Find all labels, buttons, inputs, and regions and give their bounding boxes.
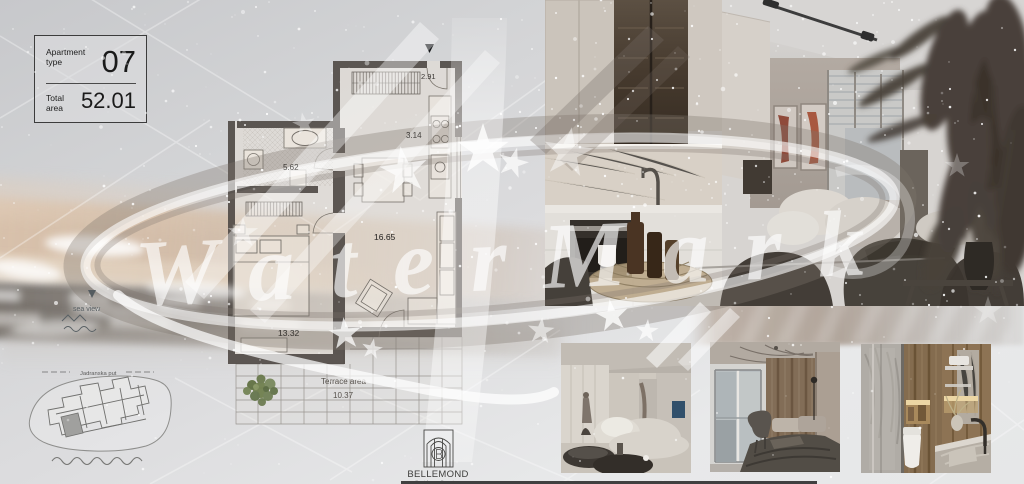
svg-text:Jadranska put: Jadranska put xyxy=(80,371,117,377)
svg-text:sea view: sea view xyxy=(73,306,101,313)
svg-text:BELLEMOND: BELLEMOND xyxy=(407,469,468,480)
